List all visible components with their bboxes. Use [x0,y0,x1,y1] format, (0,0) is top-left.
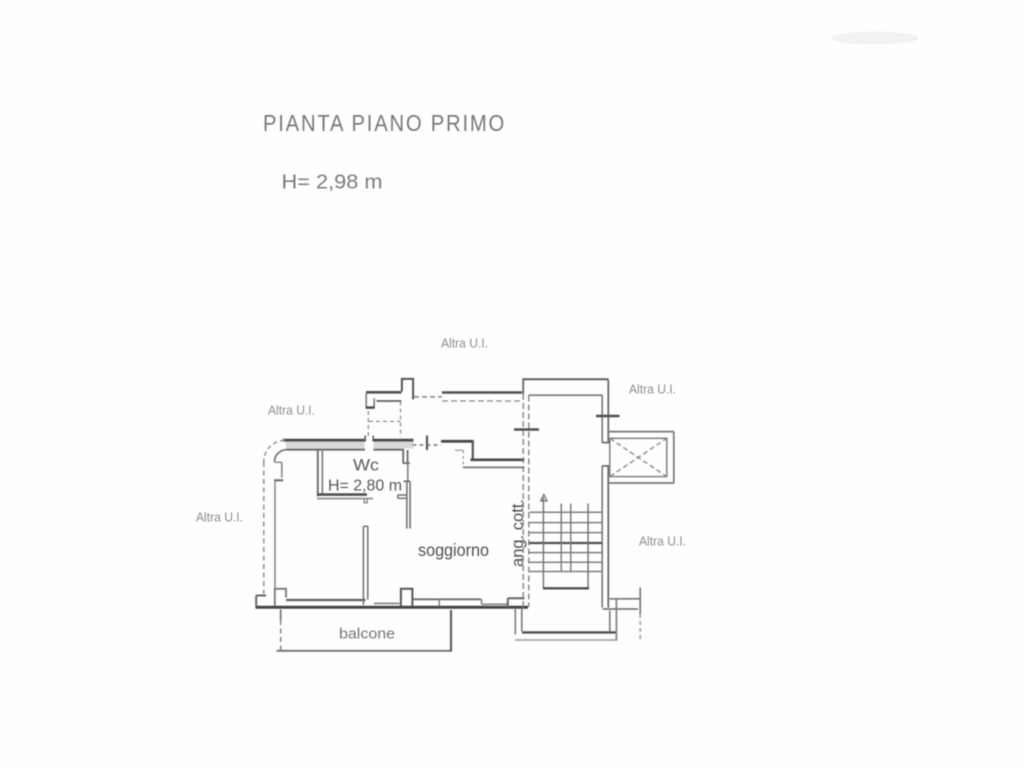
svg-text:PIANTA PIANO PRIMO: PIANTA PIANO PRIMO [263,110,506,136]
svg-text:H= 2,98 m: H= 2,98 m [282,171,383,194]
svg-text:Altra U.I.: Altra U.I. [268,403,315,418]
svg-text:ang. cott.: ang. cott. [508,499,527,567]
svg-text:Wc: Wc [353,457,379,475]
svg-text:Altra U.I.: Altra U.I. [639,534,686,549]
svg-text:Altra U.I.: Altra U.I. [196,510,243,525]
svg-text:Altra U.I.: Altra U.I. [441,336,488,351]
svg-text:soggiorno: soggiorno [418,540,489,560]
svg-text:Altra U.I.: Altra U.I. [629,382,676,397]
svg-text:balcone: balcone [339,626,395,643]
svg-text:H= 2,80 m: H= 2,80 m [328,478,402,495]
